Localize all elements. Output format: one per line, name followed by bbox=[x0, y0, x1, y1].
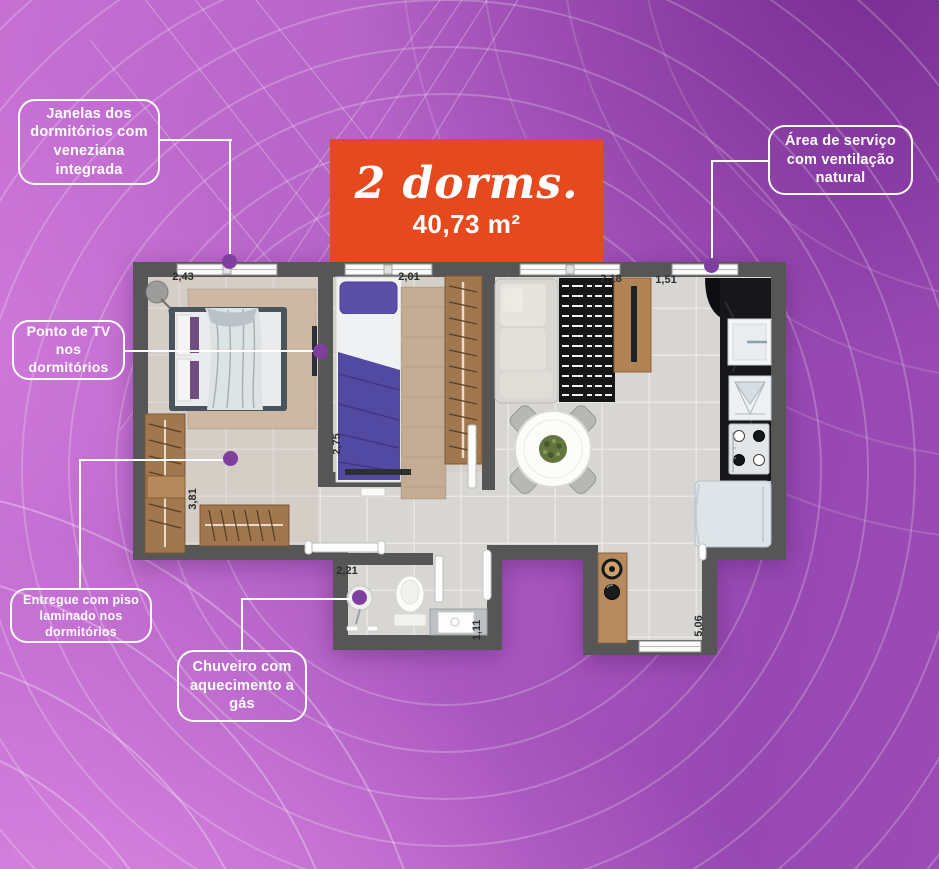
bathroom-door bbox=[435, 556, 443, 602]
table-plant bbox=[539, 435, 567, 463]
leader-tv-h bbox=[123, 350, 321, 352]
marker-dot-shower bbox=[352, 590, 367, 605]
leader-service-v bbox=[711, 160, 713, 259]
stove bbox=[729, 424, 769, 474]
callout-shower-label: Chuveiro com aquecimento a gás bbox=[187, 658, 297, 714]
marker-dot-tv bbox=[313, 344, 328, 359]
marketing-floorplan-page: { "banner": { "title": "2 dorms.", "area… bbox=[0, 0, 939, 869]
leader-windows-v bbox=[229, 139, 231, 258]
dim-service-window: 1,51 bbox=[655, 274, 676, 286]
leader-shower-h bbox=[241, 598, 360, 600]
bedroom2-rug bbox=[401, 287, 446, 499]
single-bed bbox=[336, 277, 402, 482]
dim-bedroom1-depth: 3,81 bbox=[187, 488, 199, 509]
wall-bedroom2-living bbox=[482, 277, 495, 490]
dim-bathroom-sink: 1,11 bbox=[471, 620, 483, 641]
unit-area: 40,73 m² bbox=[412, 209, 520, 240]
dim-bedroom1-window: 2,43 bbox=[172, 271, 193, 283]
corner-stool bbox=[146, 281, 168, 303]
callout-service-label: Área de serviço com ventilação natural bbox=[778, 132, 903, 188]
dim-bedroom2-depth: 2,75 bbox=[331, 433, 343, 454]
callout-gas-shower: Chuveiro com aquecimento a gás bbox=[177, 650, 307, 722]
door-jamb-left bbox=[305, 541, 312, 554]
toilet bbox=[394, 576, 426, 626]
bedroom2-door bbox=[468, 425, 476, 488]
tv-panel-bedroom2 bbox=[345, 469, 411, 475]
door-jamb-corridor bbox=[483, 550, 491, 600]
door-jamb-right bbox=[378, 541, 385, 554]
nightstand bbox=[147, 476, 185, 498]
tv-stand bbox=[614, 278, 651, 372]
leader-floor-h bbox=[79, 459, 231, 461]
callout-tv-point: Ponto de TV nos dormitórios bbox=[12, 320, 125, 380]
callout-windows: Janelas dos dormitórios com veneziana in… bbox=[18, 99, 160, 185]
wall-bedroom1-bedroom2 bbox=[318, 277, 333, 487]
marker-dot-service bbox=[704, 258, 719, 273]
door-jamb-service bbox=[699, 544, 706, 560]
wall-bathroom-top bbox=[333, 553, 433, 565]
dim-kitchen-depth: 5,06 bbox=[693, 615, 705, 636]
callout-windows-label: Janelas dos dormitórios com veneziana in… bbox=[28, 105, 150, 179]
wardrobe-bottom bbox=[200, 505, 289, 546]
dim-bathroom-width: 2,21 bbox=[336, 565, 357, 577]
leader-shower-v bbox=[241, 598, 243, 650]
maze-rug bbox=[559, 278, 615, 402]
marker-dot-floor bbox=[223, 451, 238, 466]
callout-laminate-floor: Entregue com piso laminado nos dormitóri… bbox=[10, 588, 152, 643]
service-window bbox=[639, 641, 701, 652]
leader-windows-h bbox=[158, 139, 232, 141]
callout-tv-label: Ponto de TV nos dormitórios bbox=[22, 323, 115, 377]
leader-service-h bbox=[711, 160, 768, 162]
bedroom1-door bbox=[312, 543, 378, 552]
laundry-tank bbox=[728, 319, 771, 365]
fridge bbox=[695, 481, 771, 547]
unit-banner: 2 dorms. 40,73 m² bbox=[330, 139, 603, 262]
kitchen-sink bbox=[729, 376, 771, 420]
sofa bbox=[495, 279, 558, 403]
leader-floor-v bbox=[79, 459, 81, 589]
unit-type-title: 2 dorms. bbox=[355, 162, 579, 206]
double-bed bbox=[169, 307, 287, 411]
dining-set bbox=[507, 403, 598, 496]
dim-bedroom2-window: 2,01 bbox=[398, 271, 419, 283]
callout-floor-label: Entregue com piso laminado nos dormitóri… bbox=[20, 592, 142, 640]
callout-service-area: Área de serviço com ventilação natural bbox=[768, 125, 913, 195]
marker-dot-windows bbox=[222, 254, 237, 269]
shelf-bedroom2 bbox=[361, 488, 385, 496]
dim-living-window: 2,18 bbox=[600, 273, 621, 285]
